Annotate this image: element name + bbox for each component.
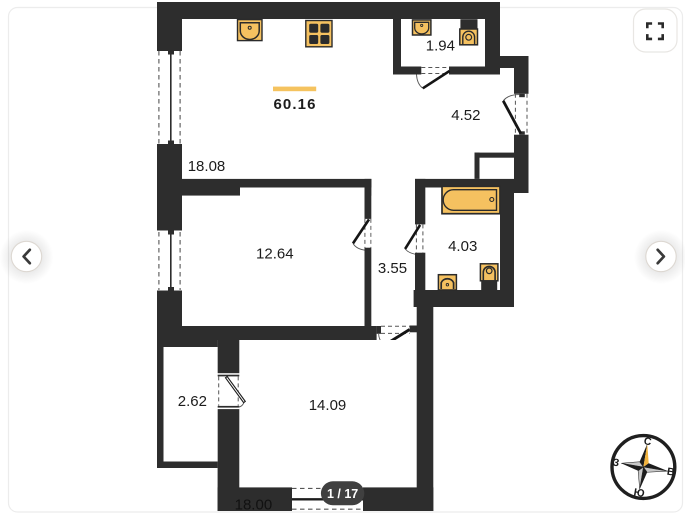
svg-text:2.62: 2.62 [178, 393, 207, 410]
svg-text:18.00: 18.00 [235, 497, 273, 514]
svg-text:1.94: 1.94 [426, 38, 455, 55]
svg-text:4.52: 4.52 [451, 107, 480, 124]
svg-text:18.08: 18.08 [188, 158, 226, 175]
svg-text:Ю: Ю [633, 486, 646, 500]
svg-text:12.64: 12.64 [256, 245, 294, 262]
svg-text:14.09: 14.09 [309, 397, 347, 414]
svg-text:4.03: 4.03 [448, 238, 477, 255]
svg-text:60.16: 60.16 [273, 96, 316, 113]
svg-text:1 / 17: 1 / 17 [327, 487, 358, 501]
svg-text:3.55: 3.55 [378, 260, 407, 277]
